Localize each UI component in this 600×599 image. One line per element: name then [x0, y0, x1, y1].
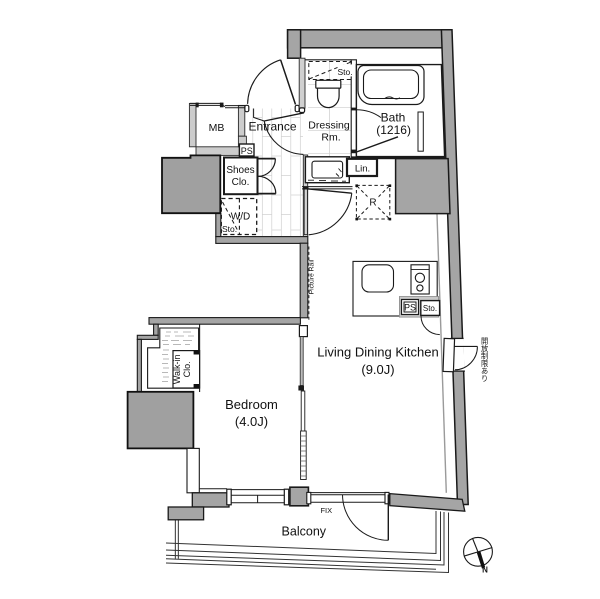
- svg-text:Dressing: Dressing: [308, 120, 350, 132]
- svg-text:PS: PS: [404, 303, 416, 313]
- svg-text:(4.0J): (4.0J): [235, 414, 268, 429]
- svg-text:Sto.: Sto.: [423, 304, 437, 313]
- svg-text:Picture Rail: Picture Rail: [309, 259, 316, 294]
- svg-text:(9.0J): (9.0J): [361, 362, 394, 377]
- svg-text:Rm.: Rm.: [321, 132, 340, 144]
- svg-text:W/D: W/D: [231, 212, 250, 223]
- svg-text:Sto.: Sto.: [222, 224, 237, 234]
- svg-text:Balcony: Balcony: [282, 524, 327, 538]
- svg-text:MB: MB: [209, 122, 225, 134]
- svg-text:Living Dining Kitchen: Living Dining Kitchen: [317, 345, 438, 360]
- svg-text:Clo.: Clo.: [232, 177, 250, 188]
- svg-text:Walk-in: Walk-in: [172, 354, 182, 384]
- svg-text:PS: PS: [241, 146, 253, 156]
- svg-text:Shoes: Shoes: [226, 165, 254, 176]
- svg-text:り: り: [481, 374, 488, 383]
- svg-text:Lin.: Lin.: [355, 163, 370, 174]
- svg-text:Clo.: Clo.: [182, 361, 192, 377]
- svg-text:FIX: FIX: [320, 506, 332, 515]
- svg-text:R: R: [369, 198, 376, 209]
- svg-text:Entrance: Entrance: [248, 120, 296, 134]
- svg-text:Bedroom: Bedroom: [225, 397, 278, 412]
- svg-text:Sto.: Sto.: [337, 67, 352, 77]
- svg-text:(1216): (1216): [376, 123, 411, 137]
- svg-text:N: N: [482, 566, 488, 575]
